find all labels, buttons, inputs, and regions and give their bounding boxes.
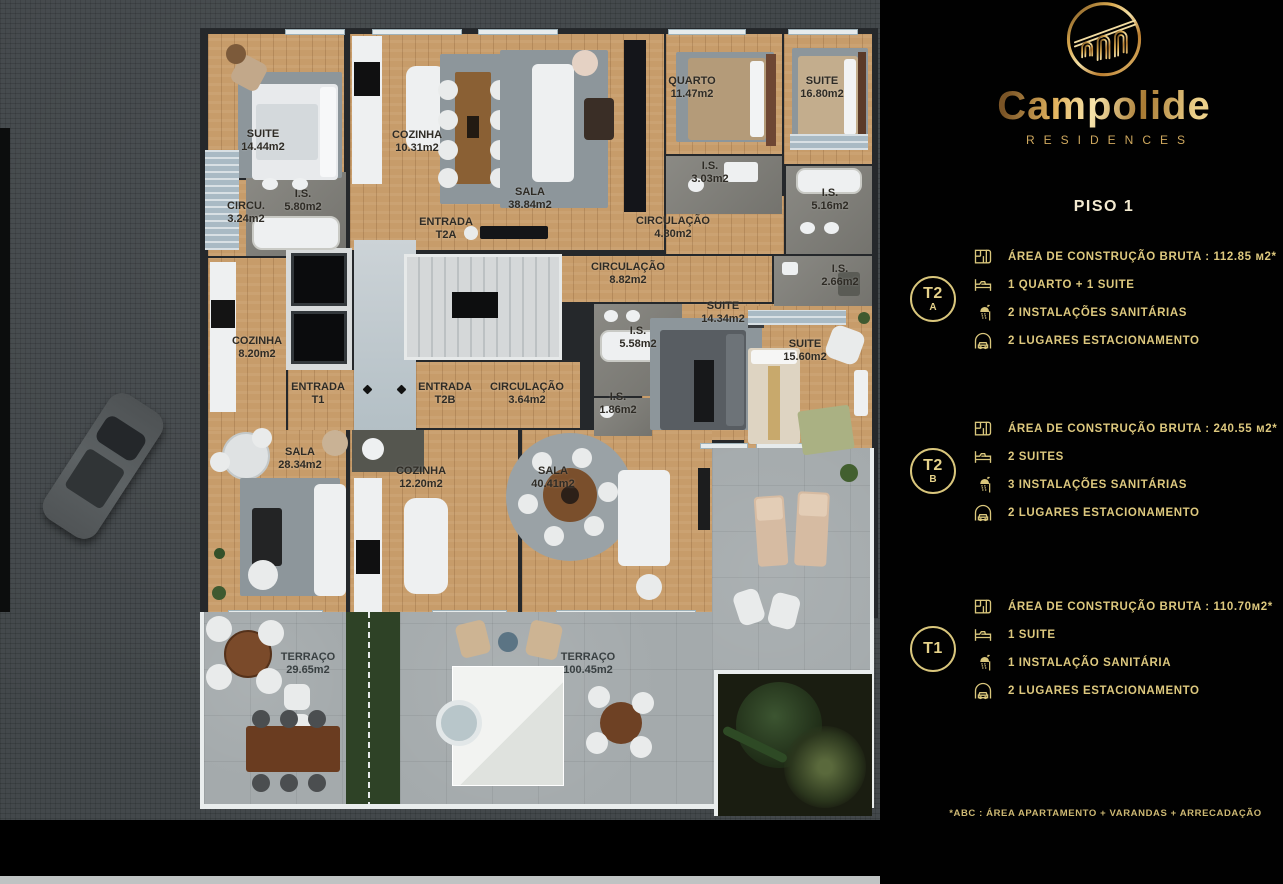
sun-lounger <box>754 495 789 567</box>
spec-row-bedrooms: 1 QUARTO + 1 SUITE <box>972 271 1277 299</box>
dining-chair <box>598 482 618 502</box>
sink <box>262 178 278 190</box>
media-unit <box>698 468 710 530</box>
sofa <box>532 64 574 182</box>
shower <box>724 162 758 182</box>
brand-logo <box>1063 0 1145 82</box>
side-table <box>498 632 518 652</box>
floorplan-icon <box>972 596 994 618</box>
floor-title: PISO 1 <box>1074 198 1135 216</box>
floorplan-page: SUITE14.44m2 CIRCU.3.24m2 I.S.5.80m2 COZ… <box>0 0 1283 884</box>
hot-tub <box>436 700 482 746</box>
spec-row-baths: 3 INSTALAÇÕES SANITÁRIAS <box>972 471 1277 499</box>
plant <box>212 586 226 600</box>
floorplan-icon <box>972 418 994 440</box>
wardrobe <box>748 310 846 325</box>
window <box>372 29 462 35</box>
brand-subtitle: RESIDENCES <box>1026 133 1194 147</box>
coffee-table <box>252 508 282 566</box>
area-footnote: *ABC : ÁREA APARTAMENTO + VARANDAS + ARR… <box>938 808 1273 819</box>
spec-row-area: ÁREA DE CONSTRUÇÃO BRUTA : 240.55 м2* <box>972 415 1277 443</box>
brand-name: Campolide <box>997 84 1210 129</box>
bed <box>660 330 746 430</box>
room-label-quarto: QUARTO11.47m2 <box>668 75 715 101</box>
room-label-cozinha-t2a: COZINHA10.31m2 <box>392 129 442 155</box>
outdoor-chair <box>308 774 326 792</box>
room-label-suite-1434: SUITE14.34m2 <box>701 300 744 326</box>
room-label-circ-364: CIRCULAÇÃO3.64m2 <box>490 381 564 407</box>
room-label-circ-882: CIRCULAÇÃO8.82m2 <box>591 261 665 287</box>
plant <box>840 464 858 482</box>
toilet <box>626 310 640 322</box>
stove <box>211 300 235 328</box>
dining-chair <box>544 526 564 546</box>
kitchen-counter <box>352 36 382 184</box>
aqueduct-logo-icon <box>1063 0 1145 82</box>
balcony-table <box>226 44 246 64</box>
dining-chair <box>572 448 592 468</box>
sink <box>824 222 839 234</box>
dining-table <box>455 72 491 184</box>
toilet <box>604 310 618 322</box>
spec-row-baths: 2 INSTALAÇÕES SANITÁRIAS <box>972 299 1277 327</box>
outdoor-chair <box>206 664 232 690</box>
headboard <box>766 54 776 146</box>
window <box>668 29 746 35</box>
elevator-cab <box>291 311 347 364</box>
floorplan-icon <box>972 246 994 268</box>
window <box>285 29 345 35</box>
stove <box>354 62 380 96</box>
stair-landing <box>452 292 498 318</box>
dining-chair <box>584 516 604 536</box>
outdoor-chair <box>308 710 326 728</box>
bed-icon <box>972 624 994 646</box>
room-label-entrada-t2a: ENTRADAT2A <box>419 216 473 242</box>
hedge-strip <box>346 612 400 808</box>
terrace-parapet-bottom <box>200 804 714 809</box>
outdoor-dining-table <box>246 726 340 772</box>
console-sideboard <box>480 226 548 239</box>
unit-badge-t1: T1 <box>910 626 956 672</box>
stove <box>356 540 380 574</box>
window <box>478 29 558 35</box>
bathtub <box>252 216 340 250</box>
spec-row-bedrooms: 2 SUITES <box>972 443 1277 471</box>
outdoor-chair <box>588 686 610 708</box>
toilet <box>782 262 798 275</box>
elevator-cab <box>291 253 347 306</box>
outdoor-chair <box>586 732 608 754</box>
headboard <box>858 52 866 144</box>
outdoor-chair <box>252 774 270 792</box>
dining-chair <box>438 110 458 130</box>
sink <box>800 222 815 234</box>
room-label-is-303: I.S.3.03m2 <box>691 160 728 186</box>
outdoor-chair <box>252 710 270 728</box>
spec-row-area: ÁREA DE CONSTRUÇÃO BRUTA : 110.70м2* <box>972 593 1273 621</box>
room-label-entrada-t1: ENTRADAT1 <box>291 381 345 407</box>
shower-icon <box>972 652 994 674</box>
window <box>788 29 858 35</box>
unit-badge-t2a: T2 A <box>910 276 956 322</box>
room-label-is-186: I.S.1.86m2 <box>599 391 636 417</box>
palm-tree <box>784 726 866 808</box>
outdoor-chair <box>632 692 654 714</box>
outdoor-chair <box>280 774 298 792</box>
room-label-terraco-t2b: TERRAÇO100.45m2 <box>561 651 615 677</box>
spec-row-parking: 2 LUGARES ESTACIONAMENTO <box>972 677 1273 705</box>
chair <box>210 452 230 472</box>
dining-chair <box>438 80 458 100</box>
shower-icon <box>972 302 994 324</box>
pouf <box>636 574 662 600</box>
unit-spec-t1: T1 ÁREA DE CONSTRUÇÃO BRUTA : 110.70м2* … <box>880 590 1283 710</box>
plant <box>214 548 225 559</box>
outdoor-chair <box>258 620 284 646</box>
outdoor-chair <box>630 736 652 758</box>
desk <box>854 370 868 416</box>
room-label-is-558: I.S.5.58m2 <box>619 325 656 351</box>
wardrobe <box>790 134 868 150</box>
kitchen-island <box>404 498 448 594</box>
spec-row-parking: 2 LUGARES ESTACIONAMENTO <box>972 327 1277 355</box>
garden <box>714 670 872 816</box>
spec-row-bedrooms: 1 SUITE <box>972 621 1273 649</box>
washer <box>362 438 384 460</box>
room-label-cozinha-t2b: COZINHA12.20m2 <box>396 465 446 491</box>
room-label-circ-480: CIRCULAÇÃO4.80m2 <box>636 215 710 241</box>
room-label-suite-1680: SUITE16.80m2 <box>800 75 843 101</box>
room-label-sala-t2a: SALA38.84m2 <box>508 186 551 212</box>
room-label-is-516: I.S.5.16m2 <box>811 187 848 213</box>
garage-icon <box>972 680 994 702</box>
boundary-dashed-line <box>368 612 370 808</box>
garage-icon <box>972 502 994 524</box>
bed-icon <box>972 446 994 468</box>
room-label-is-266: I.S.2.66m2 <box>821 263 858 289</box>
outdoor-chair <box>206 616 232 642</box>
chair <box>252 428 272 448</box>
outdoor-armchair <box>284 684 310 710</box>
room-label-terraco-t1: TERRAÇO29.65m2 <box>281 651 335 677</box>
info-panel: Campolide RESIDENCES PISO 1 T2 A ÁREA DE… <box>880 0 1283 884</box>
room-label-entrada-t2b: ENTRADAT2B <box>418 381 472 407</box>
room-label-suite-1560: SUITE15.60m2 <box>783 338 826 364</box>
swivel-chair <box>248 560 278 590</box>
hanging-chair <box>572 50 598 76</box>
room-label-cozinha-t1: COZINHA8.20m2 <box>232 335 282 361</box>
room-label-suite-t1: SUITE14.44m2 <box>241 128 284 154</box>
rug <box>797 405 855 456</box>
outdoor-chair <box>256 668 282 694</box>
plant <box>858 312 870 324</box>
room-label-circ-t1: CIRCU.3.24m2 <box>227 200 265 226</box>
room-label-is-580: I.S.5.80m2 <box>284 188 321 214</box>
coffee-table <box>584 98 614 140</box>
spec-row-area: ÁREA DE CONSTRUÇÃO BRUTA : 112.85 м2* <box>972 243 1277 271</box>
room-label-sala-t1: SALA28.34m2 <box>278 446 321 472</box>
sun-lounger <box>794 491 830 567</box>
bed-icon <box>972 274 994 296</box>
sofa <box>618 470 670 566</box>
spec-row-baths: 1 INSTALAÇÃO SANITÁRIA <box>972 649 1273 677</box>
pouf <box>322 430 348 456</box>
garage-icon <box>972 330 994 352</box>
outdoor-chair <box>280 710 298 728</box>
sidewalk-edge <box>0 128 10 612</box>
shower-icon <box>972 474 994 496</box>
room-label-sala-t2b: SALA40.41m2 <box>531 465 574 491</box>
tech-shaft <box>624 40 646 212</box>
sofa <box>314 484 346 596</box>
unit-spec-t2b: T2 B ÁREA DE CONSTRUÇÃO BRUTA : 240.55 м… <box>880 412 1283 532</box>
unit-spec-t2a: T2 A ÁREA DE CONSTRUÇÃO BRUTA : 112.85 м… <box>880 240 1283 360</box>
unit-badge-t2b: T2 B <box>910 448 956 494</box>
dining-chair <box>438 168 458 188</box>
spec-row-parking: 2 LUGARES ESTACIONAMENTO <box>972 499 1277 527</box>
dining-chair <box>518 494 538 514</box>
